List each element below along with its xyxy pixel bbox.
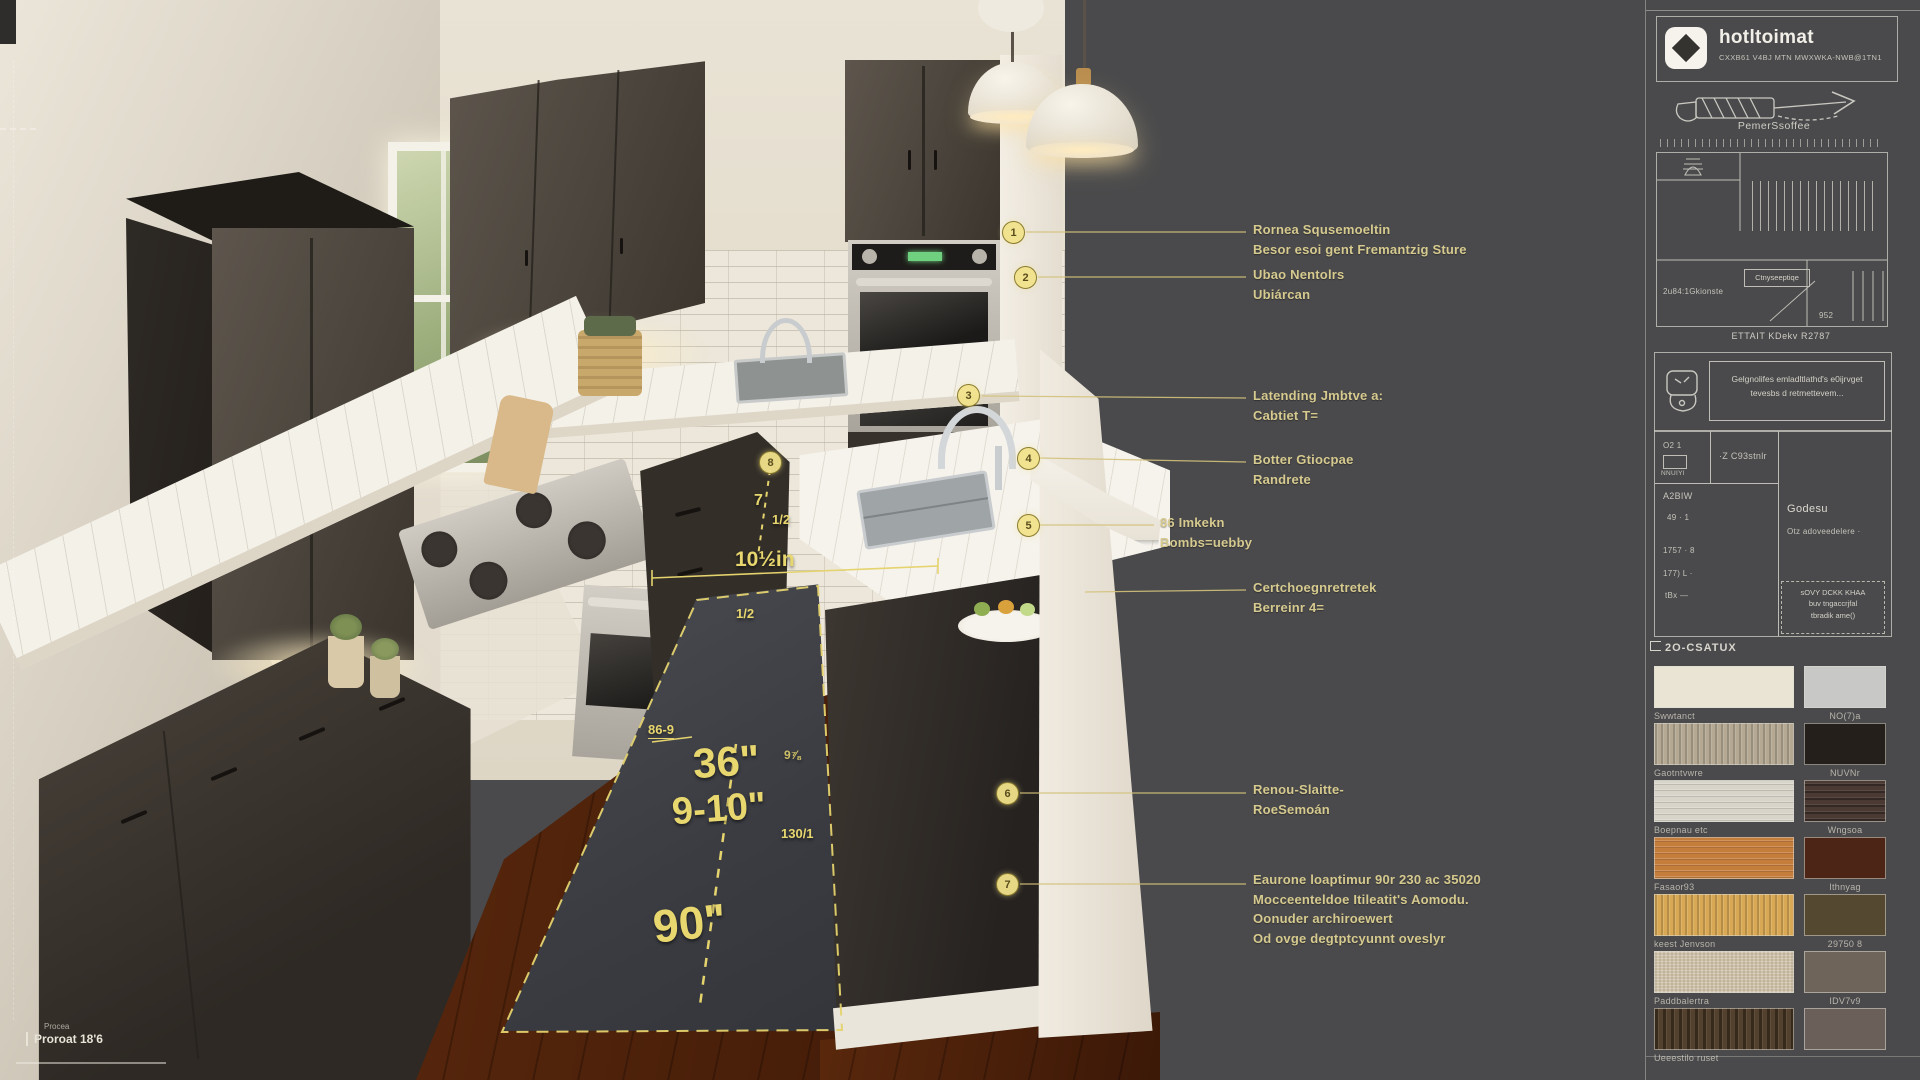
swatch[interactable]: NO(7)a xyxy=(1804,666,1886,723)
frac-small: 1/2 xyxy=(736,606,754,621)
swatch[interactable]: Swwtanct xyxy=(1654,666,1794,723)
label-line: Bombs=uebby xyxy=(1160,533,1252,553)
swatch[interactable]: Wngsoa xyxy=(1804,780,1886,837)
swatch-label: Fasaor93 xyxy=(1654,882,1794,892)
swatch-label: Swwtanct xyxy=(1654,711,1794,721)
swatch-label: keest Jenvson xyxy=(1654,939,1794,949)
table-cell: ·Z C93stnlr xyxy=(1719,451,1767,461)
table-row: A2BIW xyxy=(1663,491,1693,501)
swatch[interactable]: Fasaor93 xyxy=(1654,837,1794,894)
swatch[interactable]: keest Jenvson xyxy=(1654,894,1794,951)
annotation-label-2: Ubao Nentolrs Ubiárcan xyxy=(1253,265,1344,304)
swatch-chip[interactable] xyxy=(1804,894,1886,936)
annotation-label-4: Botter Gtiocpae Randrete xyxy=(1253,450,1354,489)
materials-section-label: 2O-CSATUX xyxy=(1650,641,1737,654)
spec-table: O2 1 NNUIYI ·Z C93stnlr A2BIW 49 · 1 175… xyxy=(1654,430,1892,637)
callout-marker-5[interactable]: 5 xyxy=(1017,514,1040,537)
swatch-label: IDV7v9 xyxy=(1804,996,1886,1006)
table-row: tBx — xyxy=(1665,591,1688,600)
rug-width-measure: 36" xyxy=(691,736,761,789)
material-swatch-grid: Swwtanct NO(7)a Gaotntvwre NUVNr Boepnau… xyxy=(1654,666,1886,1065)
tick-island-measure: 9⅞ xyxy=(784,748,801,762)
brand-logo-icon xyxy=(1665,27,1707,69)
table-cell: NNUIYI xyxy=(1661,470,1685,477)
ruler-ticks xyxy=(1660,139,1884,147)
swatch-chip[interactable] xyxy=(1654,666,1794,708)
leader-lines xyxy=(982,232,1246,884)
tick-left-measure: 86-9 xyxy=(648,722,674,739)
label-line: Certchoegnretretek xyxy=(1253,578,1377,598)
panel-bottom-rule xyxy=(1646,1056,1920,1057)
plan-left-label: 2u84:1Gkionste xyxy=(1663,287,1723,296)
kitchen-design-infographic: 36" 9-10" 90" 10½in 7 1/2 1/2 86-9 130/1… xyxy=(0,0,1920,1080)
note-line: buv tngaccrjfal xyxy=(1782,598,1884,609)
annotation-label-5: 86 Imkekn Bombs=uebby xyxy=(1160,513,1252,552)
annotation-lines xyxy=(0,0,1920,1080)
label-line: Randrete xyxy=(1253,470,1354,490)
table-vline-small xyxy=(1710,431,1711,483)
swatch-chip[interactable] xyxy=(1654,1008,1794,1050)
callout-marker-6[interactable]: 6 xyxy=(996,782,1019,805)
swatch-label: Gaotntvwre xyxy=(1654,768,1794,778)
plan-linework xyxy=(1657,153,1887,326)
callout-marker-1[interactable]: 1 xyxy=(1002,221,1025,244)
tape-measure-label: PemerSsoffee xyxy=(1646,120,1902,132)
swatch-chip[interactable] xyxy=(1654,780,1794,822)
label-line: Oonuder archiroewert xyxy=(1253,909,1481,929)
swatch-label: 29750 8 xyxy=(1804,939,1886,949)
annotation-label-3: Latending Jmbtve a: Cabtiet T= xyxy=(1253,386,1383,425)
clearance-measure: 10½in xyxy=(735,548,795,572)
spec-note-line: Gelgnolifes emladltlathd's e0ijrvget xyxy=(1710,374,1884,384)
swatch-chip[interactable] xyxy=(1654,894,1794,936)
spec-note-inner: Gelgnolifes emladltlathd's e0ijrvget tev… xyxy=(1709,361,1885,421)
note-line: tbradik ame() xyxy=(1782,610,1884,621)
spec-panel: hotltoimat CXXB61 V4BJ MTN MWXWKA-NWB@1T… xyxy=(1645,0,1920,1080)
label-line: Od ovge degtptcyunnt oveslyr xyxy=(1253,929,1481,949)
label-line: Latending Jmbtve a: xyxy=(1253,386,1383,406)
label-line: Cabtiet T= xyxy=(1253,406,1383,426)
swatch[interactable]: Ithnyag xyxy=(1804,837,1886,894)
label-line: Mocceenteldoe Itileatit's Aomodu. xyxy=(1253,890,1481,910)
table-body: Otz adoveedelere · xyxy=(1787,527,1860,536)
label-line: Botter Gtiocpae xyxy=(1253,450,1354,470)
swatch-chip[interactable] xyxy=(1654,723,1794,765)
label-line: Ubao Nentolrs xyxy=(1253,265,1344,285)
annotation-label-7: Renou-Slaitte- RoeSemoán xyxy=(1253,780,1344,819)
table-row: 177) L · xyxy=(1663,569,1693,578)
swatch-chip[interactable] xyxy=(1804,666,1886,708)
table-row: 1757 · 8 xyxy=(1663,546,1695,555)
annotation-label-8: Eaurone loaptimur 90r 230 ac 35020 Mocce… xyxy=(1253,870,1481,948)
hatch-block xyxy=(1752,181,1880,231)
tick-mid-measure: 130/1 xyxy=(781,826,814,841)
plan-inner-label-box: Ctnyseeptiqe xyxy=(1744,269,1810,287)
swatch[interactable]: 29750 8 xyxy=(1804,894,1886,951)
swatch-label: Wngsoa xyxy=(1804,825,1886,835)
table-vline xyxy=(1778,431,1779,636)
swatch-label: Ueeestilo ruset xyxy=(1654,1053,1794,1063)
section-label-text: 2O-CSATUX xyxy=(1665,642,1737,654)
table-head: Godesu xyxy=(1787,503,1828,515)
appliance-icon xyxy=(1663,365,1703,419)
swatch[interactable]: Boepnau etc xyxy=(1654,780,1794,837)
swatch-chip[interactable] xyxy=(1804,837,1886,879)
swatch-label: Ithnyag xyxy=(1804,882,1886,892)
swatch-chip[interactable] xyxy=(1804,780,1886,822)
callout-marker-8[interactable]: 8 xyxy=(759,451,782,474)
clearance-whole: 7 xyxy=(754,492,763,510)
panel-top-rule xyxy=(1646,10,1920,11)
label-line: RoeSemoán xyxy=(1253,800,1344,820)
swatch[interactable]: IDV7v9 xyxy=(1804,951,1886,1008)
plan-caption: ETTAIT KDekv R2787 xyxy=(1706,331,1856,341)
swatch-chip[interactable] xyxy=(1804,951,1886,993)
swatch-chip[interactable] xyxy=(1654,951,1794,993)
annotation-label-6: Certchoegnretretek Berreinr 4= xyxy=(1253,578,1377,617)
annotation-label-1: Rornea Squsemoeltin Besor esoi gent Frem… xyxy=(1253,220,1467,259)
callout-marker-4[interactable]: 4 xyxy=(1017,447,1040,470)
table-cell-icon xyxy=(1663,455,1687,469)
plan-dim: 952 xyxy=(1819,311,1833,320)
floor-note: Proroat 18'6 xyxy=(26,1032,103,1046)
swatch-label: NO(7)a xyxy=(1804,711,1886,721)
label-line: Renou-Slaitte- xyxy=(1253,780,1344,800)
swatch[interactable]: Paddbalertra xyxy=(1654,951,1794,1008)
table-row: 49 · 1 xyxy=(1667,513,1689,522)
label-line: Berreinr 4= xyxy=(1253,598,1377,618)
floor-note-small: Procea xyxy=(44,1022,69,1031)
callout-marker-3[interactable]: 3 xyxy=(957,384,980,407)
dashed-note-box: sOVY DCKK KHAA buv tngaccrjfal tbradik a… xyxy=(1781,581,1885,634)
rug-length-measure: 90" xyxy=(650,892,728,953)
note-line: sOVY DCKK KHAA xyxy=(1782,587,1884,598)
brand-name: hotltoimat xyxy=(1719,27,1814,49)
section-icon xyxy=(1650,641,1661,651)
swatch-label: Paddbalertra xyxy=(1654,996,1794,1006)
swatch[interactable]: NUVNr xyxy=(1804,723,1886,780)
label-line: Rornea Squsemoeltin xyxy=(1253,220,1467,240)
label-line: Eaurone loaptimur 90r 230 ac 35020 xyxy=(1253,870,1481,890)
spec-note-line: tevesbs d retmettevem... xyxy=(1710,388,1884,398)
plan-inner-label: Ctnyseeptiqe xyxy=(1745,270,1809,285)
swatch[interactable]: Gaotntvwre xyxy=(1654,723,1794,780)
plan-drawing-box: Ctnyseeptiqe 2u84:1Gkionste 952 xyxy=(1656,152,1888,327)
swatch-label: NUVNr xyxy=(1804,768,1886,778)
label-line: Ubiárcan xyxy=(1253,285,1344,305)
callout-marker-2[interactable]: 2 xyxy=(1014,266,1037,289)
table-hline xyxy=(1655,483,1778,484)
swatch-label: Boepnau etc xyxy=(1654,825,1794,835)
swatch-chip[interactable] xyxy=(1804,1008,1886,1050)
table-cell: O2 1 xyxy=(1663,441,1682,450)
label-line: Besor esoi gent Fremantzig Sture xyxy=(1253,240,1467,260)
label-line: 86 Imkekn xyxy=(1160,513,1252,533)
brand-tagline: CXXB61 V4BJ MTN MWXWKA-NWB@1TN1 xyxy=(1719,53,1887,62)
clearance-frac: 1/2 xyxy=(772,512,790,527)
swatch-chip[interactable] xyxy=(1654,837,1794,879)
spec-note-box: Gelgnolifes emladltlathd's e0ijrvget tev… xyxy=(1654,352,1892,432)
swatch-chip[interactable] xyxy=(1804,723,1886,765)
logo-box: hotltoimat CXXB61 V4BJ MTN MWXWKA-NWB@1T… xyxy=(1656,16,1898,82)
logo-diamond xyxy=(1672,34,1700,62)
callout-marker-7[interactable]: 7 xyxy=(996,873,1019,896)
rug-gap-measure: 9-10" xyxy=(671,785,768,834)
